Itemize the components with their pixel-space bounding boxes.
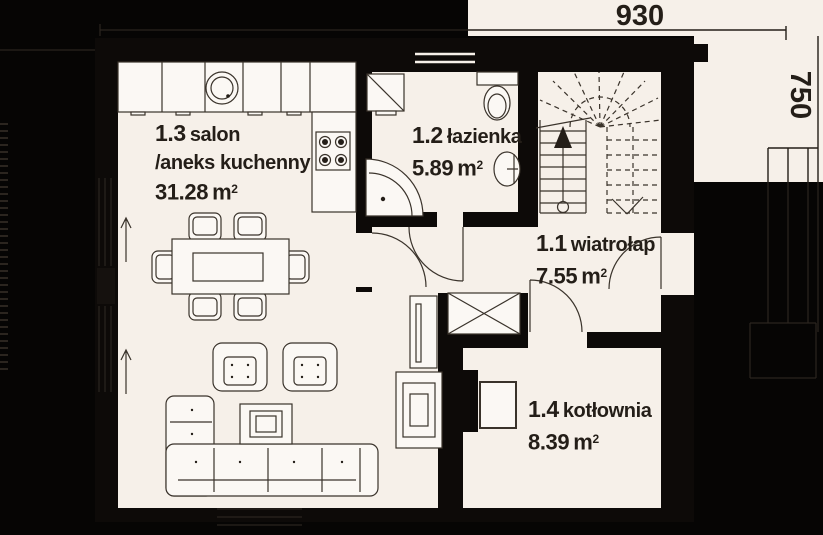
dimension-width-label: 930 xyxy=(570,0,710,33)
kotlownia-door-opening xyxy=(528,332,587,348)
porch-outline xyxy=(750,148,818,378)
salon-door-opening xyxy=(356,233,372,287)
armchair xyxy=(283,343,337,391)
floor-plan-drawing xyxy=(0,0,823,535)
room-id-name: 1.1 wiatrołap xyxy=(536,230,655,260)
chimney-block xyxy=(463,370,478,432)
coffee-table xyxy=(240,404,292,444)
washing-machine xyxy=(367,74,404,115)
chimney-vent-box xyxy=(448,293,520,334)
room-area: 5.89 m2 xyxy=(412,152,521,184)
room-area: 7.55 m2 xyxy=(536,260,655,292)
dining-chair xyxy=(234,292,266,320)
armchair xyxy=(213,343,267,391)
room-area: 31.28 m2 xyxy=(155,176,310,208)
room-label-salon: 1.3 salon /aneks kuchenny 31.28 m2 xyxy=(155,120,310,208)
room-label-kotlownia: 1.4 kotłownia 8.39 m2 xyxy=(528,396,651,458)
room-id-name: 1.4 kotłownia xyxy=(528,396,651,426)
room-id-name: 1.2 łazienka xyxy=(412,122,521,152)
boiler xyxy=(480,382,516,428)
entrance-opening xyxy=(661,233,694,295)
room-area: 8.39 m2 xyxy=(528,426,651,458)
wiatrolap-floor xyxy=(528,293,661,332)
floor-plan-page: 930 750 1.3 salon /aneks kuchenny 31.28 … xyxy=(0,0,823,535)
room-name-2: /aneks kuchenny xyxy=(155,150,310,176)
wall-shelf xyxy=(410,296,437,368)
dining-chair xyxy=(189,213,221,241)
fireplace xyxy=(396,372,442,448)
log-end-stub xyxy=(694,44,708,62)
bathroom-door-opening xyxy=(437,212,463,227)
room-id-name: 1.3 salon xyxy=(155,120,310,150)
dining-table xyxy=(172,239,289,294)
hall-floor xyxy=(372,227,538,293)
left-edge-ticks xyxy=(0,118,8,370)
room-label-lazienka: 1.2 łazienka 5.89 m2 xyxy=(412,122,521,184)
dimension-height-label: 750 xyxy=(784,35,816,155)
dining-chair xyxy=(234,213,266,241)
room-label-wiatrolap: 1.1 wiatrołap 7.55 m2 xyxy=(536,230,655,292)
dining-chair xyxy=(189,292,221,320)
